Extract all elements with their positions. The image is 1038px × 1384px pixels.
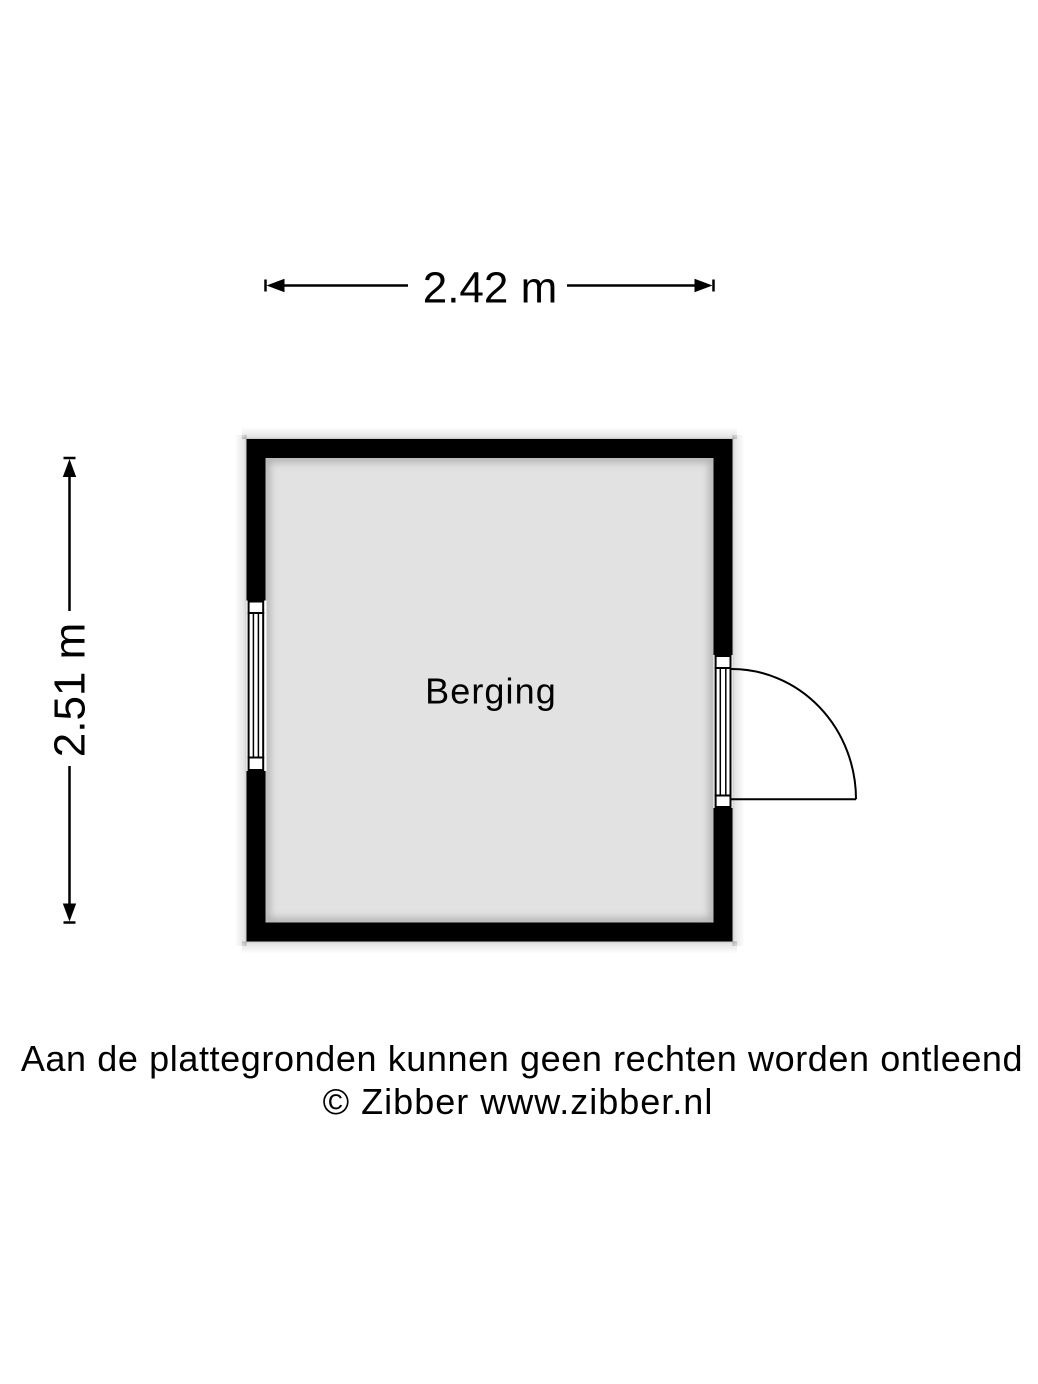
svg-text:2.42 m: 2.42 m	[423, 264, 558, 313]
svg-text:© Zibber www.zibber.nl: © Zibber www.zibber.nl	[323, 1081, 714, 1122]
svg-text:Berging: Berging	[425, 671, 557, 712]
svg-text:Aan de plattegronden kunnen ge: Aan de plattegronden kunnen geen rechten…	[21, 1038, 1023, 1079]
svg-text:2.51 m: 2.51 m	[46, 623, 95, 758]
